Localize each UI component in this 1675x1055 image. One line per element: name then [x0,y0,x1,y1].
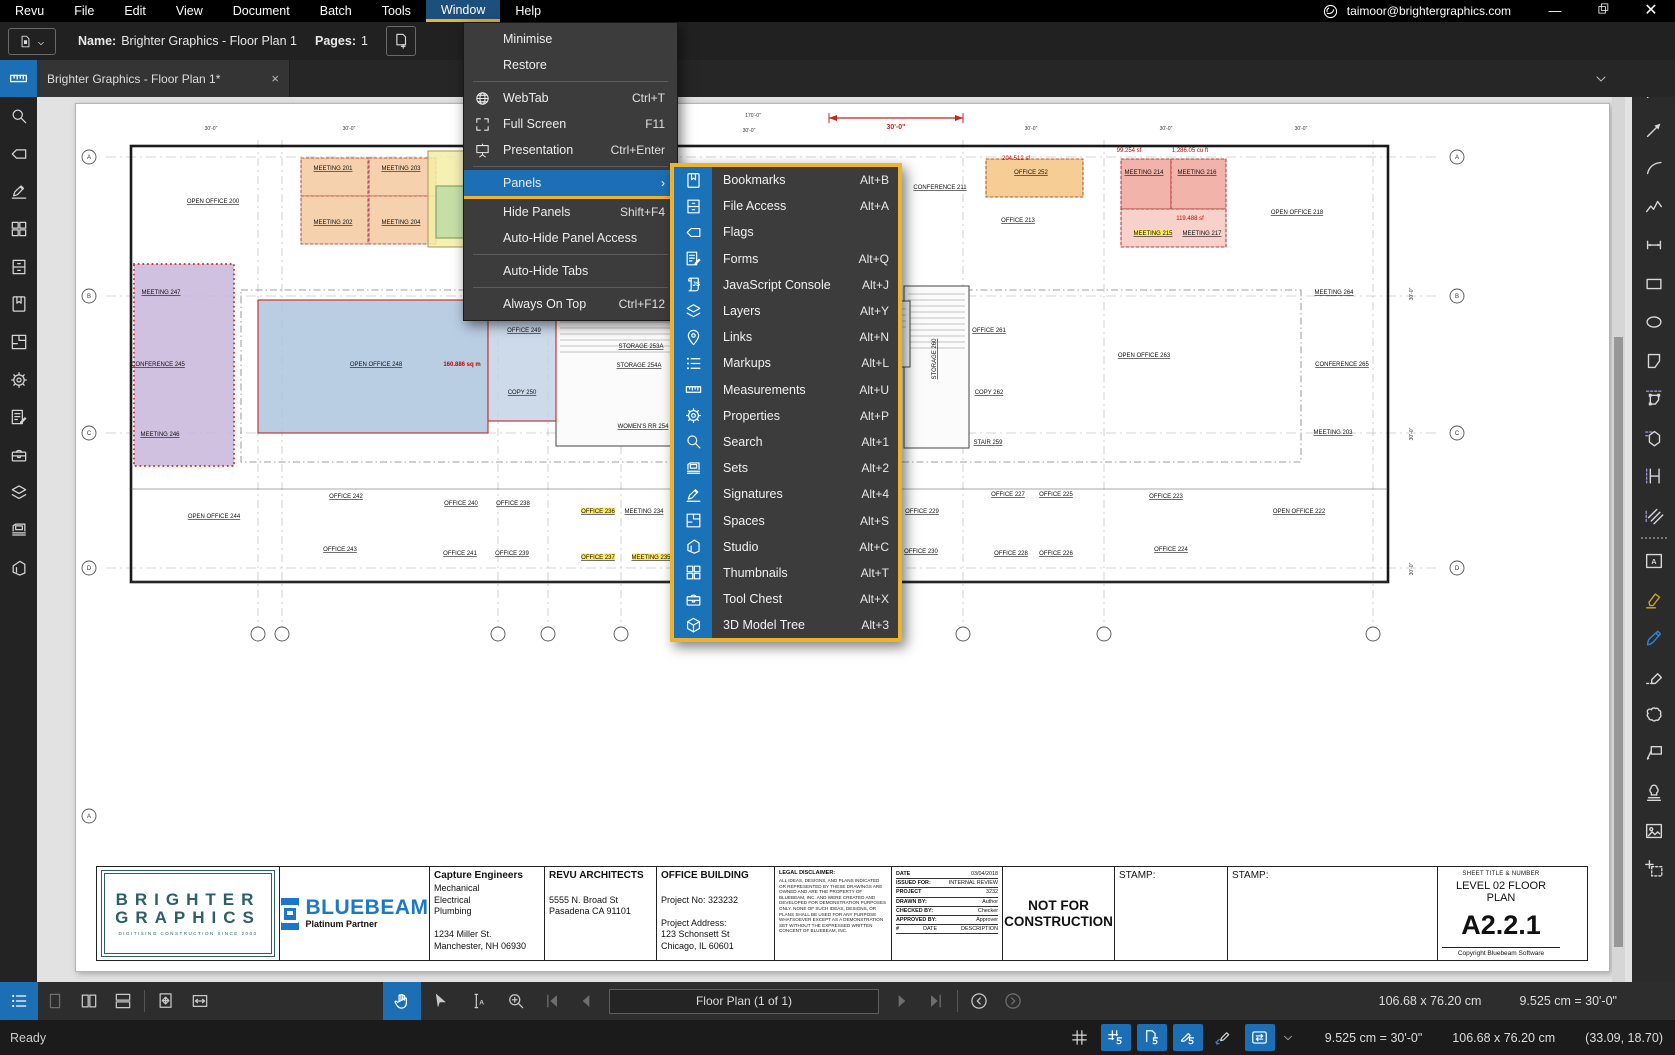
status-size: 106.68 x 76.20 cm [1452,1031,1555,1045]
room-label: 30'-0" [205,126,218,132]
submenu-item-label: Studio [712,540,859,554]
room-label: 99.254 sf [1117,148,1142,154]
tool-polymeasure-button[interactable] [1632,380,1675,419]
previous-view-button[interactable] [962,982,996,1020]
polymeasure-icon [1643,388,1665,410]
room-label: 1,286.05 cu ft [1172,148,1209,154]
sidebar-item-studio[interactable] [0,549,37,587]
tool-rect-button[interactable] [1632,265,1675,304]
room-label: WOMEN'S RR 254 [618,424,669,430]
submenu-item-label: JavaScript Console [712,278,862,292]
menu-item-shortcut: Ctrl+F12 [619,297,665,311]
window-menu-item-full-screen[interactable]: Full ScreenF11 [464,111,677,137]
sidebar-item-thumbnails[interactable] [0,210,37,248]
grid-bubble-label: B [87,294,91,300]
callout-icon [1643,743,1665,765]
grid-bubble-label: C [87,431,92,437]
panels-submenu-item-bookmarks[interactable]: BookmarksAlt+B [674,167,898,193]
tool-stamp-button[interactable] [1632,773,1675,812]
grid-bubble-label: D [87,566,92,572]
document-name: Brighter Graphics - Floor Plan 1 [121,34,297,48]
menu-document[interactable]: Document [218,0,305,22]
snap-to-markup-toggle[interactable] [1173,1024,1203,1051]
menu-item-label: Full Screen [503,117,645,131]
pages-value: 1 [361,34,368,48]
room-label: MEETING 203 [381,166,421,172]
panels-submenu-item-file-access[interactable]: File AccessAlt+A [674,193,898,219]
space-markup[interactable] [488,309,556,421]
arrow-icon [1643,119,1665,141]
pan-zoom-buttons: A [383,982,535,1020]
room-label: MEETING 204 [381,220,421,226]
panels-submenu-item-search[interactable]: SearchAlt+1 [674,429,898,455]
panels-submenu-item-spaces[interactable]: SpacesAlt+S [674,507,898,533]
grid-bubble [541,627,555,641]
tool-callout-button[interactable] [1632,735,1675,774]
menu-file[interactable]: File [59,0,109,22]
toolchest-icon [9,445,29,465]
snap-to-content-toggle[interactable] [1137,1024,1167,1051]
name-label: Name: [78,34,116,48]
room-label: MEETING 203 [1313,430,1353,436]
room-label: 30'-0" [1025,126,1038,132]
tool-pen-button[interactable] [1632,619,1675,658]
sidebar-item-fileaccess[interactable] [0,248,37,286]
submenu-item-label: Spaces [712,514,860,528]
flag-icon [674,219,712,245]
submenu-item-shortcut: Alt+P [860,409,898,423]
menu-item-label: Auto-Hide Panel Access [503,231,665,245]
view-mode-buttons [0,982,217,1020]
menu-help[interactable]: Help [500,0,556,22]
submenu-item-label: Links [712,330,859,344]
textbox-icon: A [1643,550,1665,572]
menu-item-shortcut: Ctrl+Enter [611,143,665,157]
room-label: MEETING 202 [313,220,353,226]
window-menu-item-minimise[interactable]: Minimise [464,26,677,52]
tool-dimlen-button[interactable] [1632,226,1675,265]
toolbar-collapse-chevron-icon[interactable] [1593,71,1609,87]
next-page-button[interactable] [885,982,919,1020]
room-label: OFFICE 239 [495,551,529,557]
document-tab[interactable]: Brighter Graphics - Floor Plan 1* × [37,60,290,97]
room-label: MEETING 247 [141,290,181,296]
new-page-icon [392,32,410,50]
continuous-view-button[interactable] [106,982,140,1020]
tool-arrow-button[interactable] [1632,111,1675,150]
links-icon [674,324,712,350]
toolbar-divider [1641,537,1667,539]
submenu-item-label: Markups [712,356,861,370]
panels-submenu-item-thumbnails[interactable]: ThumbnailsAlt+T [674,560,898,586]
grid-bubble [614,627,628,641]
sidebar-item-search[interactable] [0,97,37,135]
room-label: MEETING 264 [1314,290,1354,296]
menu-window[interactable]: Window [426,0,500,22]
tool-textbox-button[interactable]: A [1632,542,1675,581]
room-label: CONFERENCE 211 [913,185,967,191]
panels-submenu-item-javascript-console[interactable]: JSJavaScript ConsoleAlt+J [674,272,898,298]
room-label: OFFICE 252 [1014,170,1048,176]
blank-icon [474,56,496,74]
room-label: OFFICE 249 [507,328,541,334]
document-size: 106.68 x 76.20 cm [1379,994,1482,1008]
tab-close-icon[interactable]: × [271,71,279,86]
menu-item-label: WebTab [503,91,632,105]
menu-item-shortcut: Ctrl+T [632,91,665,105]
submenu-item-label: Forms [712,252,859,266]
last-page-button[interactable] [919,982,953,1020]
room-label: 30'-0" [1409,427,1415,440]
menu-item-label: Presentation [503,143,611,157]
room-label: 204.512 sf [1002,156,1030,162]
room-label: 30'-0" [343,126,356,132]
menu-edit[interactable]: Edit [109,0,161,22]
space-markup[interactable] [1121,159,1171,209]
dimlen-icon [1643,234,1665,256]
sidebar-item-layers[interactable] [0,474,37,512]
room-label: MEETING 216 [1177,170,1217,176]
sets-icon [9,520,29,540]
toolchest-icon [674,586,712,612]
two-page-view-button[interactable] [72,982,106,1020]
tool-ellipse-button[interactable] [1632,303,1675,342]
room-label: MEETING 201 [313,166,353,172]
fileaccess-icon [9,257,29,277]
room-label: MEETING 215 [1133,231,1173,237]
dimension-label: 30'-0" [887,124,906,131]
room-label: OFFICE 223 [1149,494,1183,500]
submenu-item-shortcut: Alt+U [859,383,898,397]
panels-submenu-item-studio[interactable]: StudioAlt+C [674,534,898,560]
sidebar-item-toolchest[interactable] [0,436,37,474]
window-menu-item-hide-panels[interactable]: Hide PanelsShift+F4 [464,199,677,225]
panels-submenu-item-flags[interactable]: Flags [674,219,898,245]
grid-bubble-label: A [87,155,91,161]
menu-divider [473,254,668,255]
submenu-item-shortcut: Alt+N [859,330,898,344]
grid-bubble [275,627,289,641]
ellipse-icon [1643,311,1665,333]
tool-caliper-button[interactable] [1632,457,1675,496]
stamp-icon [1643,781,1665,803]
room-label: CONFERENCE 245 [131,362,185,368]
select-tool-button[interactable] [421,982,459,1020]
menu-batch[interactable]: Batch [305,0,367,22]
menu-divider [473,287,668,288]
grid-bubble [491,627,505,641]
document-bar: Name: Brighter Graphics - Floor Plan 1 P… [0,22,1675,60]
tool-polygon-button[interactable] [1632,342,1675,381]
pages-label: Pages: [315,34,356,48]
menu-view[interactable]: View [161,0,218,22]
panels-submenu-item-markups[interactable]: MarkupsAlt+L [674,350,898,376]
document-menu-button[interactable] [8,28,56,55]
grid-bubble [1097,627,1111,641]
panels-submenu-item-forms[interactable]: FormsAlt+Q [674,246,898,272]
measurements-icon [8,68,29,89]
menu-divider [473,166,668,167]
sidebar-item-bookmark[interactable] [0,285,37,323]
vertical-scrollbar[interactable] [1612,97,1625,982]
menu-item-label: Auto-Hide Tabs [503,264,665,278]
space-markup[interactable] [1171,159,1226,209]
room-label: MEETING 217 [1182,231,1222,237]
cloud-icon [1643,704,1665,726]
legal-disclaimer: LEGAL DISCLAIMER:ALL IDEAS, DESIGNS, AND… [775,867,892,960]
submenu-item-label: Signatures [712,487,861,501]
sidebar-item-flag[interactable] [0,135,37,173]
grid-bubble [1366,627,1380,641]
presentation-icon [474,141,496,159]
new-page-button[interactable] [386,26,416,56]
sidebar-item-gear[interactable] [0,361,37,399]
panels-submenu-item-links[interactable]: LinksAlt+N [674,324,898,350]
panels-submenu-item-3d-model-tree[interactable]: 3D Model TreeAlt+3 [674,612,898,638]
hatch-icon [1643,504,1665,526]
left-panel-rail [0,97,37,982]
menu-item-shortcut: F11 [645,117,665,131]
status-text: Ready [10,1031,46,1045]
tool-highlighter-button[interactable] [1632,581,1675,620]
menu-divider [473,81,668,82]
signatures-icon [9,181,29,201]
scrollbar-thumb[interactable] [1614,337,1623,947]
room-label: OFFICE 241 [443,551,477,557]
js-icon: JS [674,272,712,298]
tool-arc-button[interactable] [1632,149,1675,188]
panels-submenu-item-sets[interactable]: SetsAlt+2 [674,455,898,481]
next-view-button[interactable] [996,982,1030,1020]
grid-bubble [956,627,970,641]
grid-bubble [251,627,265,641]
submenu-item-shortcut: Alt+X [860,592,898,606]
menu-item-label: Panels [503,176,661,190]
svg-text:A: A [1651,557,1657,566]
submenu-item-label: 3D Model Tree [712,618,861,632]
room-label: OFFICE 236 [581,509,615,515]
submenu-item-label: Measurements [712,383,859,397]
room-label: OFFICE 226 [1039,551,1073,557]
pan-tool-button[interactable] [383,982,421,1020]
grid-bubble-label: B [1455,294,1459,300]
submenu-item-label: Thumbnails [712,566,861,580]
menu-item-label: Minimise [503,32,665,46]
status-chevron-icon[interactable] [1281,1031,1295,1045]
room-label: 30'-0" [743,128,756,134]
studio-icon [9,558,29,578]
menu-item-shortcut: Shift+F4 [620,205,665,219]
sets-icon [674,455,712,481]
bookmark-icon [9,294,29,314]
panels-submenu-item-properties[interactable]: PropertiesAlt+P [674,403,898,429]
submenu-item-shortcut: Alt+J [862,278,898,292]
title-block: BRIGHTERGRAPHICSDIGITISING CONSTRUCTION … [96,866,1588,961]
account-email[interactable]: taimoor@brightergraphics.com [1347,4,1511,18]
bluebeam-logo: BLUEBEAMPlatinum Partner [280,867,430,960]
room-label: STORAGE 260 [932,338,938,380]
restore-button[interactable] [1579,0,1627,22]
submenu-item-label: Sets [712,461,861,475]
window-menu-item-presentation[interactable]: PresentationCtrl+Enter [464,137,677,163]
window-menu-item-panels[interactable]: Panels› [464,170,677,199]
room-label: MEETING 235 [631,555,671,561]
tool-snapshot-button[interactable] [1632,850,1675,889]
submenu-item-shortcut: Alt+1 [861,435,898,449]
forms-icon [674,246,712,272]
cursor-coordinates: (33.09, 18.70) [1585,1031,1663,1045]
fit-width-button[interactable] [183,982,217,1020]
page-field[interactable]: Floor Plan (1 of 1) [609,989,879,1014]
menu-item-label: Restore [503,58,665,72]
room-label: 30'-0" [1409,562,1415,575]
submenu-item-shortcut: Alt+B [860,173,898,187]
panels-submenu-item-signatures[interactable]: SignaturesAlt+4 [674,481,898,507]
room-label: 160.886 sq m [443,362,480,368]
brighter-graphics-logo: BRIGHTERGRAPHICSDIGITISING CONSTRUCTION … [97,867,280,960]
previous-page-button[interactable] [569,982,603,1020]
snap-to-grid-toggle[interactable] [1101,1024,1131,1051]
sidebar-item-sets[interactable] [0,512,37,550]
bluebeam-logo-icon [1322,3,1339,20]
room-label: MEETING 214 [1124,170,1164,176]
room-label: STORAGE 253A [619,344,664,350]
sync-views-toggle[interactable] [1245,1024,1275,1051]
room-label: COPY 250 [508,390,537,396]
document-icon [18,34,33,49]
titlebar-right: taimoor@brightergraphics.com — ✕ [1322,0,1675,22]
page-pan-button[interactable] [149,982,183,1020]
select-text-button[interactable]: A [459,982,497,1020]
window-menu-item-auto-hide-panel-access[interactable]: Auto-Hide Panel Access [464,225,677,251]
blank-icon [474,203,496,221]
room-label: 30'-0" [1295,126,1308,132]
sidebar-item-measurements-active[interactable] [0,60,37,97]
svg-text:A: A [479,999,484,1006]
sidebar-item-forms[interactable] [0,399,37,437]
status-scale[interactable]: 9.525 cm = 30'-0" [1325,1031,1423,1045]
cube3d-icon [674,612,712,638]
gear-icon [9,370,29,390]
room-label: 119.488 sf [1176,216,1204,222]
title-block-office-building: OFFICE BUILDING Project No: 323232 Proje… [657,867,775,960]
blank-icon [474,262,496,280]
submenu-item-label: Tool Chest [712,592,860,606]
navigation-toolbar: A Floor Plan (1 of 1) 106.68 x 76.20 cm … [0,982,1675,1020]
fullscreen-icon [474,115,496,133]
room-label: OFFICE 229 [905,509,939,515]
room-label: COPY 262 [975,390,1004,396]
space-markup[interactable] [986,159,1083,197]
panels-submenu: BookmarksAlt+BFile AccessAlt+AFlagsForms… [670,163,902,642]
submenu-item-label: Properties [712,409,860,423]
tool-cloud-button[interactable] [1632,696,1675,735]
minimize-button[interactable]: — [1531,0,1579,22]
first-page-button[interactable] [535,982,569,1020]
markups-icon [674,350,712,376]
gear-icon [674,403,712,429]
menu-revu[interactable]: Revu [0,0,59,22]
blank-icon [474,174,496,192]
grid-bubble-label: D [1455,566,1460,572]
rect-icon [1643,273,1665,295]
grid-toggle[interactable] [1065,1024,1095,1051]
markup-list-toggle[interactable] [0,982,38,1020]
submenu-item-label: Flags [712,225,889,239]
globe-icon [474,89,496,107]
room-label: OFFICE 227 [991,492,1025,498]
sidebar-item-spaces[interactable] [0,323,37,361]
tool-polyline-button[interactable] [1632,188,1675,227]
tool-imageic-button[interactable] [1632,812,1675,851]
room-label: MEETING 246 [140,432,180,438]
pen-icon [1643,627,1665,649]
room-label: 30'-0" [1160,126,1173,132]
window-menu-item-webtab[interactable]: WebTabCtrl+T [464,85,677,111]
submenu-item-shortcut: Alt+L [861,356,898,370]
spaces-icon [9,332,29,352]
panels-submenu-item-measurements[interactable]: MeasurementsAlt+U [674,377,898,403]
space-markup[interactable] [369,158,436,196]
space-markup[interactable] [301,158,368,196]
room-label: OFFICE 238 [496,501,530,507]
snapshot-icon [1643,858,1665,880]
panels-submenu-item-layers[interactable]: LayersAlt+Y [674,298,898,324]
eraser-icon [1643,666,1665,688]
markup-toolbar: A [1632,60,1675,982]
window-menu-item-restore[interactable]: Restore [464,52,677,78]
submenu-arrow-icon: › [661,176,665,190]
thumbnails-icon [674,560,712,586]
close-button[interactable]: ✕ [1627,0,1675,22]
zoom-tool-button[interactable] [497,982,535,1020]
space-markup[interactable] [1121,209,1226,247]
room-label: OFFICE 228 [994,551,1028,557]
single-page-view-button[interactable] [38,982,72,1020]
panels-submenu-item-tool-chest[interactable]: Tool ChestAlt+X [674,586,898,612]
signatures-icon [674,481,712,507]
submenu-item-shortcut: Alt+Q [859,252,898,266]
title-block-capture-engineers: Capture EngineersMechanicalElectricalPlu… [430,867,545,960]
submenu-item-shortcut: Alt+C [859,540,898,554]
room-label: CONFERENCE 265 [1315,362,1369,368]
revu-window: RevuFileEditViewDocumentBatchToolsWindow… [0,0,1675,1055]
room-label: OPEN OFFICE 263 [1118,353,1171,359]
submenu-item-label: Bookmarks [712,173,860,187]
search-icon [674,429,712,455]
submenu-item-shortcut: Alt+3 [861,618,898,632]
tool-eraser-button[interactable] [1632,658,1675,697]
submenu-item-label: File Access [712,199,860,213]
tool-area-button[interactable] [1632,419,1675,458]
sidebar-item-signatures[interactable] [0,172,37,210]
menu-tools[interactable]: Tools [367,0,426,22]
spaces-icon [674,507,712,533]
window-menu-item-auto-hide-tabs[interactable]: Auto-Hide Tabs [464,258,677,284]
tab-bar: Brighter Graphics - Floor Plan 1* × [0,60,1675,97]
blank-icon [474,30,496,48]
bluebeam-mark-icon [281,898,299,930]
blank-icon [474,229,496,247]
flag-icon [9,144,29,164]
reuse-markup-toggle[interactable] [1209,1024,1239,1051]
window-menu-item-always-on-top[interactable]: Always On TopCtrl+F12 [464,291,677,317]
studio-icon [674,534,712,560]
tool-hatch-button[interactable] [1632,496,1675,535]
document-scale: 9.525 cm = 30'-0" [1519,994,1617,1008]
sheet-number-box: SHEET TITLE & NUMBERLEVEL 02 FLOORPLANA2… [1438,867,1564,960]
room-label: OFFICE 230 [904,549,938,555]
